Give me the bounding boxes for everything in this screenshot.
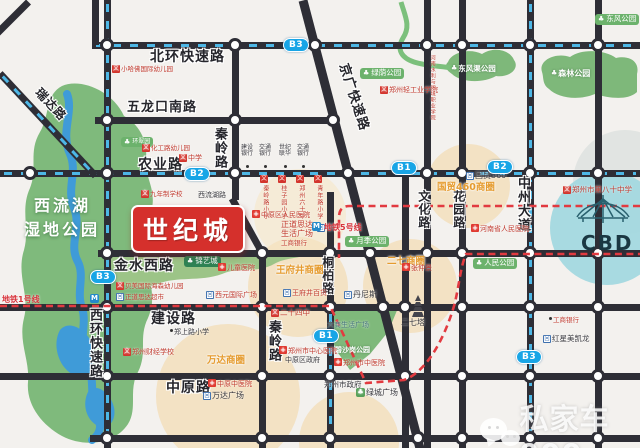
- label-icbc-2-text: 工商银行: [553, 316, 579, 324]
- dot-bank-2: [264, 164, 268, 173]
- label-erqi-tower: 二七塔: [401, 318, 425, 327]
- label-dongfengqu-park-text: 东风渠公园: [458, 64, 496, 73]
- treewhite-icon: ♣: [348, 237, 354, 245]
- label-bishagang-park: 碧沙岗公园: [335, 346, 370, 354]
- label-metro-line1: 地铁1号线: [2, 295, 40, 304]
- label-forest-park-text: 森林公园: [558, 69, 590, 78]
- label-lvyin-park: ♣绿荫公园: [360, 68, 404, 79]
- brt-badge-b3-north-text: B3: [289, 40, 303, 50]
- label-guomao460-circle-text: 国贸460商圈: [437, 182, 495, 193]
- label-nongye-road: 农业路: [138, 157, 183, 173]
- school-icon: 文: [296, 175, 304, 183]
- dot-bank-1: [246, 164, 250, 173]
- label-wulongkou-south-road: 五龙口南路: [127, 101, 197, 116]
- shop-icon: 回: [543, 335, 551, 343]
- label-jiaotong-bank-1: 交通银行: [259, 145, 271, 158]
- label-cbd-text: CBD: [581, 231, 634, 255]
- brt-badge-b2-west-text: B2: [190, 169, 204, 179]
- label-xiaohafo-kindergarten-text: 小哈佛国际幼儿园: [121, 65, 173, 73]
- label-wetland-park-text: 湿地公园: [24, 220, 100, 239]
- label-qingnian-primary-text: 青年路小学: [316, 185, 323, 220]
- hospital-icon: +: [279, 346, 287, 354]
- icon-metro-line5: M: [312, 222, 322, 232]
- label-renmin-park-text: 人民公园: [484, 259, 514, 268]
- label-xiaohafo-kindergarten: 文小哈佛国际幼儿园: [112, 65, 173, 73]
- label-beihuan-expressway: 北环快速路: [150, 49, 225, 65]
- treewhite-icon: ♣: [551, 69, 557, 77]
- treewhite-icon: ♣: [363, 69, 369, 77]
- label-nine-year-school-text: 九年制学校: [150, 190, 183, 198]
- hospital-icon: +: [334, 358, 342, 366]
- brt-badge-b2-east: B2: [487, 160, 513, 174]
- label-district-gov: 中原区政府: [285, 356, 320, 364]
- label-cbd: CBD: [581, 232, 634, 255]
- icon-metro-line1: M: [90, 294, 100, 304]
- shijicheng-logo: 世纪城: [131, 205, 245, 253]
- label-caijin-school-text: 郑州财经学校: [132, 348, 174, 356]
- label-zhengshang-primary-text: 郑上路小学: [174, 328, 209, 336]
- label-qinling-road-south-text: 秦岭路: [266, 320, 281, 362]
- label-yueji-park: ♣月季公园: [345, 236, 389, 247]
- icon-guiziyuan-primary: 文: [278, 175, 287, 184]
- label-renmin-park: ♣人民公园: [473, 258, 517, 269]
- label-beimei-kindergarten: 文贝美国际海森幼儿园: [116, 282, 184, 290]
- label-jiaotong-bank-2-line-1: 银行: [297, 151, 309, 157]
- label-jiaotong-bank-1-line-1: 银行: [259, 151, 271, 157]
- label-center-hospital: +郑州市中心医院: [279, 346, 337, 355]
- label-dennis-text: 丹尼斯: [353, 290, 377, 299]
- label-zhangzhongjing: +张仲景: [402, 263, 432, 272]
- label-zhongyuan-district-hospital-text: 中原区人民医院: [261, 211, 310, 219]
- label-24th-school-text: 二十四中: [280, 308, 310, 317]
- map-generated-layers: 北环快速路五龙口南路农业路金水西路建设路中原路瑞达路西环快速路秦岭路秦岭路桐柏路…: [0, 0, 640, 448]
- shop-icon: 回: [283, 289, 291, 297]
- metro-icon: M: [90, 294, 99, 303]
- label-zhongyuan-district-hospital: +中原区人民医院: [252, 210, 310, 219]
- label-wanda-plaza: 回万达广场: [203, 391, 244, 400]
- label-metro-line5-text: 地铁5号线: [324, 223, 362, 232]
- label-huayuan-road: 花园路: [451, 190, 465, 229]
- dot-bank-3: [284, 164, 288, 173]
- label-shiji-lianhua: 世纪联华: [279, 145, 291, 158]
- label-24th-school: 文二十四中: [271, 309, 310, 318]
- label-caijin-school: 文郑州财经学校: [123, 348, 174, 356]
- label-hongxing-text: 红星美凯龙: [552, 334, 590, 343]
- label-80th-school-text: 郑州市第八十中学: [572, 185, 632, 194]
- label-wenhua-road: 文化路: [416, 190, 430, 229]
- label-qingnian-primary: 青年路小学: [315, 185, 322, 220]
- brt-badge-b3-zhongzhou: B3: [516, 350, 542, 364]
- erqi-tower-icon: [412, 295, 424, 317]
- label-ertong-hospital-text: 儿童医院: [227, 264, 255, 272]
- school-icon: 文: [112, 65, 120, 73]
- label-hongxing: 回红星美凯龙: [543, 335, 590, 344]
- label-lvcheng-square: ♣绿城广场: [356, 388, 398, 397]
- label-dongfeng-park: ♣东风公园: [595, 14, 639, 25]
- shop-icon: 回: [203, 392, 211, 400]
- label-zhengdao-plaza: 正道思达生活广场: [281, 220, 313, 238]
- school-icon: 文: [123, 348, 131, 356]
- treewhite-icon: ♣: [476, 259, 482, 267]
- label-zhongyuan-tcm-text: 中原中医院: [217, 380, 252, 388]
- hospital-icon: +: [252, 210, 260, 218]
- label-zhongyuan-tcm: +中原中医院: [208, 379, 252, 388]
- label-wangfujing-circle: 王府井商圈: [276, 266, 324, 277]
- label-jinyicheng-text: 锦艺城: [195, 257, 218, 266]
- brt-badge-b1-tongbai-text: B1: [319, 331, 333, 341]
- label-dongfengqu-park: ♣东风渠公园: [451, 64, 496, 74]
- label-zhengshang-primary: 郑上路小学: [170, 328, 209, 336]
- label-ertong-hospital: +儿童医院: [218, 263, 255, 272]
- label-city-tcm-hospital: +郑州市中医院: [334, 358, 385, 367]
- label-xiliuhu-road: 西流湖路: [198, 191, 226, 199]
- label-jianshe-road-text: 建设路: [151, 311, 196, 327]
- dot-icon: [246, 165, 249, 168]
- label-metro-line5: 地铁5号线: [324, 223, 362, 232]
- label-zhengdao-plaza-line-0: 正道思达: [281, 220, 313, 229]
- label-nongye-road-text: 农业路: [138, 157, 183, 173]
- wechat-icon: [480, 415, 515, 448]
- label-wanda-plaza-text: 万达广场: [212, 391, 244, 400]
- label-dashang-plaza-text: 大商生活广场: [327, 321, 369, 329]
- school-icon: 文: [380, 86, 388, 94]
- treewhite-icon: ♣: [124, 138, 130, 146]
- brt-badge-b3-north: B3: [283, 38, 309, 52]
- label-zhengdao-plaza-line-1: 生活广场: [281, 229, 313, 238]
- label-huayuan-road-text: 花园路: [452, 190, 466, 229]
- label-shiji-lianhua-line-1: 联华: [279, 151, 291, 157]
- label-qinling-road-north-text: 秦岭路: [212, 127, 227, 169]
- label-lvcheng-square-text: 绿城广场: [366, 388, 398, 397]
- school-icon: 文: [314, 175, 322, 183]
- label-jianshe-road: 建设路: [151, 311, 196, 327]
- label-nine-year-school: 文九年制学校: [141, 190, 183, 198]
- label-xiyuan-plaza-text: 西元国际广场: [215, 291, 257, 299]
- label-icbc-2: 工商银行: [549, 317, 579, 324]
- school-icon: 文: [142, 144, 150, 152]
- label-xiliuhu-text: 西流湖: [34, 196, 91, 215]
- label-qinling-road-south: 秦岭路: [265, 320, 280, 362]
- hospital-icon: +: [218, 263, 226, 271]
- brt-badge-b1-nongye-text: B1: [397, 163, 411, 173]
- label-shuili-college-text: 河南水利与环境职业学院: [430, 55, 436, 121]
- brt-badge-b1-tongbai: B1: [313, 329, 339, 343]
- label-wenhua-road-text: 文化路: [417, 190, 431, 229]
- label-qinling-road-north: 秦岭路: [211, 127, 226, 169]
- school-icon: 文: [271, 309, 279, 317]
- school-icon: 文: [260, 175, 268, 183]
- label-bishagang-park-text: 碧沙岗公园: [335, 346, 370, 354]
- label-center-hospital-text: 郑州市中心医院: [288, 347, 337, 355]
- label-yueji-park-text: 月季公园: [356, 237, 386, 246]
- label-xiyuan-plaza: 回西元国际广场: [206, 291, 257, 299]
- label-henan-province-hospital: +河南省人民医院: [471, 224, 529, 233]
- watermark-text: 私家车999: [520, 396, 640, 448]
- school-icon: 文: [179, 154, 187, 162]
- label-xiliuhu: 西流湖: [34, 197, 91, 215]
- school-icon: 文: [278, 175, 286, 183]
- label-zhengdao-market: 回正道思达超市: [116, 293, 164, 301]
- metro-icon: M: [312, 222, 321, 231]
- school-icon: 文: [563, 186, 571, 194]
- brt-badge-b3-west: B3: [90, 270, 116, 284]
- map-canvas: 北环快速路五龙口南路农业路金水西路建设路中原路瑞达路西环快速路秦岭路秦岭路桐柏路…: [0, 0, 640, 448]
- label-wangfujing-store-text: 王府井百货: [292, 289, 327, 297]
- hospital-icon: +: [402, 263, 410, 271]
- hospital-icon: +: [208, 379, 216, 387]
- label-middle-school-text: 中学: [188, 154, 202, 162]
- label-lvyin-park-text: 绿荫公园: [371, 69, 401, 78]
- label-middle-school: 文中学: [179, 154, 202, 162]
- label-jinshui-west-road: 金水西路: [114, 258, 174, 274]
- label-wanda-circle: 万达商圈: [207, 356, 245, 367]
- label-jiaotong-bank-2: 交通银行: [297, 145, 309, 158]
- label-jinyicheng: ♣锦艺城: [184, 256, 221, 267]
- label-erqi-tower-text: 二七塔: [401, 318, 425, 327]
- label-wanda-circle-text: 万达商圈: [207, 355, 245, 366]
- shop-icon: 回: [116, 293, 124, 301]
- label-zhangzhongjing-text: 张仲景: [411, 264, 432, 272]
- brt-badge-b3-zhongzhou-text: B3: [522, 352, 536, 362]
- label-city-tcm-hospital-text: 郑州市中医院: [343, 359, 385, 367]
- dot-icon: [170, 329, 173, 332]
- dot-icon: [284, 165, 287, 168]
- school-icon: 文: [141, 190, 149, 198]
- label-jianshe-bank: 建设银行: [241, 145, 253, 158]
- hospital-icon: +: [471, 224, 479, 232]
- label-guomao460-circle: 国贸460商圈: [437, 183, 495, 194]
- label-beimei-kindergarten-text: 贝美国际海森幼儿园: [125, 282, 184, 290]
- brt-badge-b2-east-text: B2: [493, 162, 507, 172]
- label-xihuan-expressway: 西环快速路: [86, 308, 101, 378]
- label-forest-park: ♣森林公园: [551, 69, 590, 78]
- shop-icon: 回: [466, 172, 474, 180]
- label-zhengdao-market-text: 正道思达超市: [125, 293, 164, 301]
- watermark: 私家车999: [480, 396, 640, 448]
- label-district-gov-text: 中原区政府: [285, 356, 320, 364]
- label-wetland-park: 湿地公园: [24, 221, 100, 239]
- treewhite-icon: ♣: [598, 15, 604, 23]
- label-henan-province-hospital-text: 河南省人民医院: [480, 225, 529, 233]
- label-icbc-1-text: 工商银行: [281, 239, 307, 247]
- shop-icon: 回: [206, 291, 214, 299]
- dot-bank-4: [302, 164, 306, 173]
- label-metro-line1-text: 地铁1号线: [2, 295, 40, 304]
- label-wangfujing-store: 回王府井百货: [283, 289, 327, 297]
- label-huagong-kindergarten: 文化工路幼儿园: [142, 144, 190, 152]
- label-dashang-plaza: 大商生活广场: [327, 321, 369, 329]
- brt-badge-b3-west-text: B3: [96, 272, 110, 282]
- icon-60th-school: 文: [296, 175, 305, 184]
- cbd-pavilion-icon: [581, 199, 625, 218]
- shop-icon: 回: [344, 291, 352, 299]
- dot-icon: [549, 317, 552, 320]
- label-wulongkou-south-road-text: 五龙口南路: [127, 100, 197, 115]
- dot-icon: [302, 165, 305, 168]
- label-dongfeng-park-text: 东风公园: [606, 15, 636, 24]
- treewhite-icon: ♣: [187, 257, 193, 265]
- label-shuili-college: 河南水利与环境职业学院: [429, 55, 435, 121]
- label-xihuan-expressway-text: 西环快速路: [87, 308, 102, 378]
- label-wangfujing-circle-text: 王府井商圈: [276, 265, 324, 276]
- icon-qinling-primary: 文: [260, 175, 269, 184]
- brt-badge-b1-nongye: B1: [391, 161, 417, 175]
- school-icon: 文: [116, 282, 124, 290]
- label-dennis: 回丹尼斯: [344, 290, 377, 299]
- icon-qingnian-primary: 文: [314, 175, 323, 184]
- label-80th-school: 文郑州市第八十中学: [563, 186, 632, 195]
- shijicheng-logo-text: 世纪城: [143, 211, 233, 247]
- brt-badge-b2-west: B2: [184, 167, 210, 181]
- label-icbc-1: 工商银行: [281, 240, 307, 247]
- label-jianshe-bank-line-1: 银行: [241, 151, 253, 157]
- dot-icon: [264, 165, 267, 168]
- label-jinshui-west-road-text: 金水西路: [114, 258, 174, 274]
- label-xiliuhu-road-text: 西流湖路: [198, 191, 226, 199]
- treewhite-icon: ♣: [451, 64, 457, 72]
- label-huagong-kindergarten-text: 化工路幼儿园: [151, 144, 190, 152]
- tree-icon: ♣: [356, 388, 365, 397]
- label-beihuan-expressway-text: 北环快速路: [150, 49, 225, 65]
